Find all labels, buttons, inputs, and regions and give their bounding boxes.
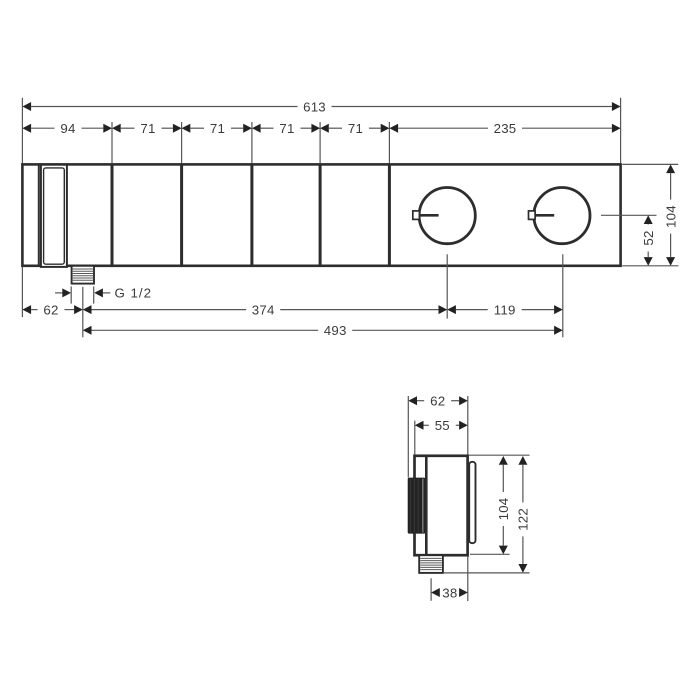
- svg-text:71: 71: [279, 121, 294, 136]
- svg-text:119: 119: [494, 302, 516, 317]
- svg-text:104: 104: [663, 205, 678, 228]
- svg-text:374: 374: [252, 302, 275, 317]
- svg-text:122: 122: [516, 508, 531, 531]
- svg-text:62: 62: [43, 302, 58, 317]
- svg-text:235: 235: [494, 121, 517, 136]
- svg-text:62: 62: [430, 394, 445, 409]
- svg-text:G 1/2: G 1/2: [115, 286, 153, 301]
- svg-text:613: 613: [303, 99, 326, 114]
- svg-text:94: 94: [60, 121, 75, 136]
- svg-text:52: 52: [641, 230, 656, 245]
- svg-text:71: 71: [140, 121, 155, 136]
- svg-text:71: 71: [348, 121, 363, 136]
- svg-text:71: 71: [210, 121, 225, 136]
- svg-text:38: 38: [442, 585, 457, 600]
- svg-text:104: 104: [496, 498, 511, 521]
- svg-text:55: 55: [435, 418, 450, 433]
- svg-text:493: 493: [324, 323, 347, 338]
